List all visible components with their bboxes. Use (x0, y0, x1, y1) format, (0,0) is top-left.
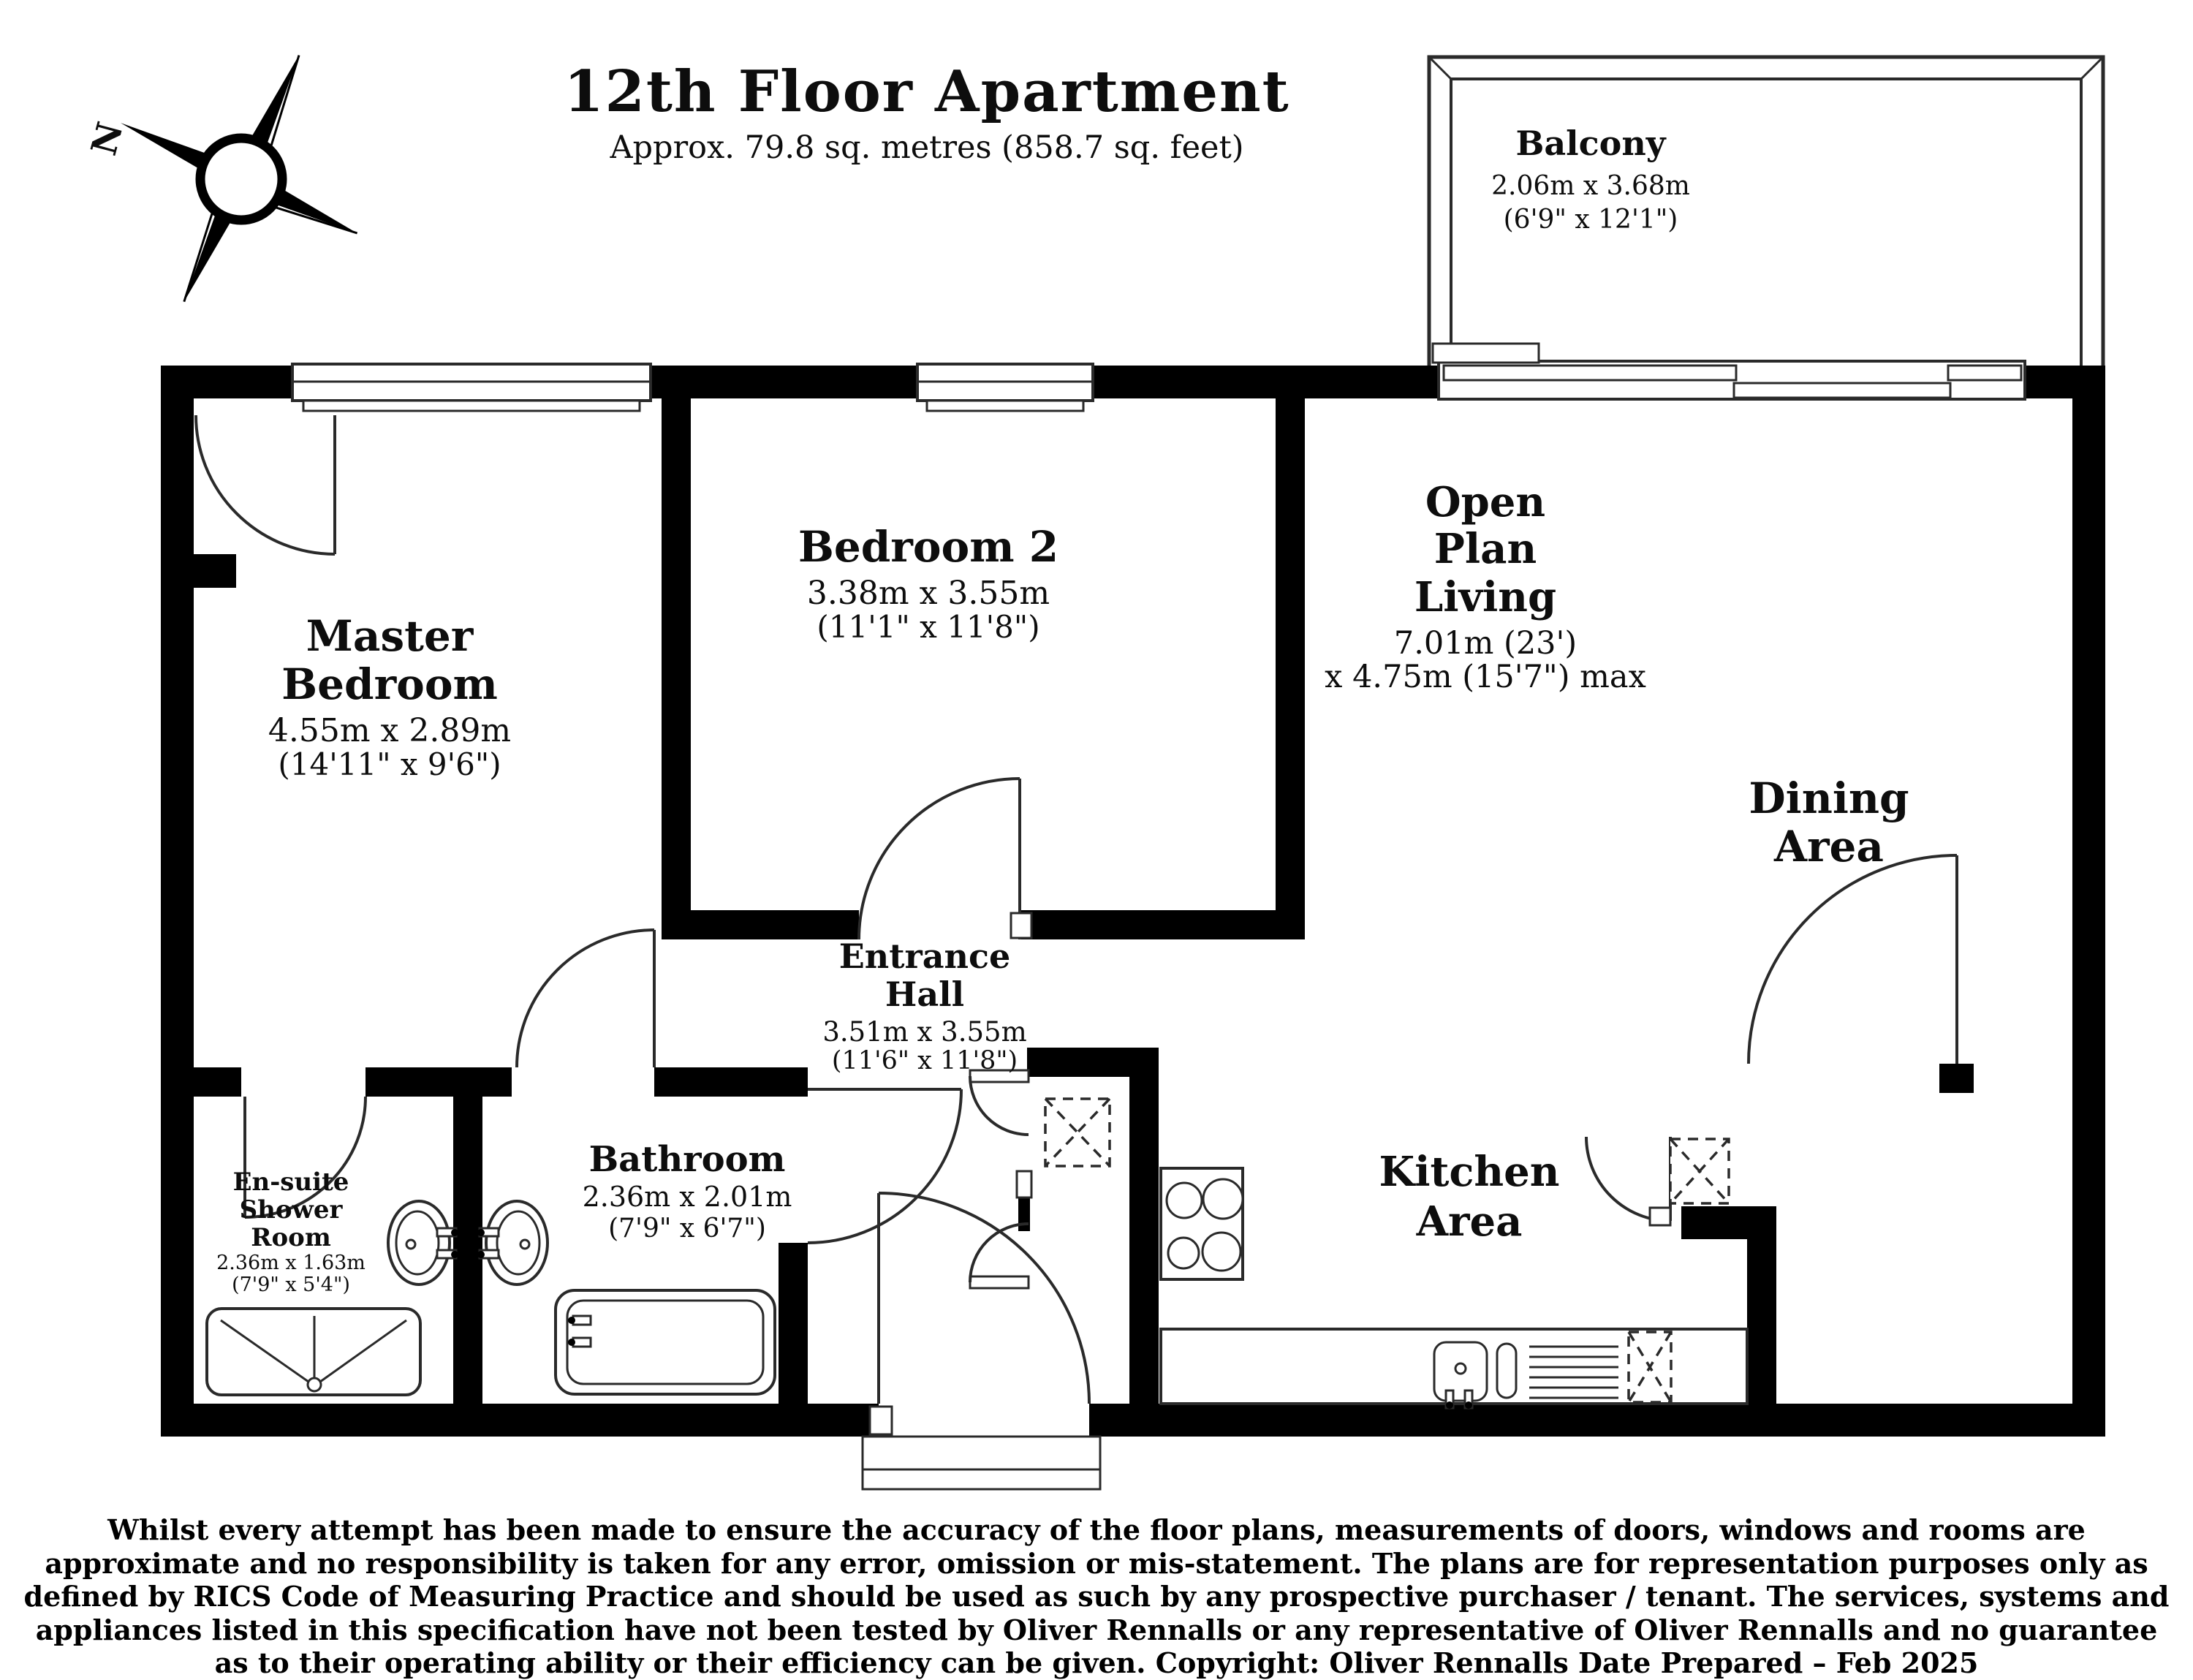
ensuite-name-2: Shower (240, 1195, 344, 1225)
bathtub-icon (556, 1290, 775, 1394)
disclaimer-text: Whilst every attempt has been made to en… (15, 1503, 2178, 1680)
shower-tray-icon (207, 1309, 420, 1395)
ensuite-dims-imperial: (7'9" x 5'4") (232, 1274, 350, 1296)
living-name-2: Plan (1434, 525, 1537, 573)
bathroom-dims-imperial: (7'9" x 6'7") (608, 1214, 766, 1244)
hob-icon (1161, 1168, 1243, 1279)
dishwasher-space-icon (1629, 1332, 1671, 1402)
bedroom2-door (859, 779, 1031, 939)
bedroom2-label: Bedroom 2 3.38m x 3.55m (11'1" x 11'8") (798, 522, 1058, 645)
balcony-dims-imperial: (6'9" x 12'1") (1504, 205, 1678, 235)
bathroom-door (808, 1089, 961, 1243)
kitchen-door (1586, 1137, 1670, 1225)
living-dims-1: 7.01m (23') (1394, 625, 1577, 662)
wardrobe-door (196, 415, 335, 554)
floor-plan-page: N 12th Floor Apartment Approx. 79.8 sq. … (0, 0, 2193, 1645)
dining-name-1: Dining (1749, 773, 1909, 823)
balcony-name: Balcony (1515, 124, 1666, 163)
bathroom-dims-metric: 2.36m x 2.01m (583, 1181, 792, 1213)
living-name-3: Living (1414, 573, 1556, 621)
bathroom-basin-icon (477, 1201, 548, 1284)
ensuite-name-3: Room (251, 1223, 331, 1252)
bedroom2-window (917, 364, 1093, 411)
bedroom2-dims-metric: 3.38m x 3.55m (807, 575, 1050, 612)
balcony-dims-metric: 2.06m x 3.68m (1491, 171, 1690, 201)
dining-area-label: Dining Area (1749, 773, 1909, 871)
balcony-sliding-door (1433, 344, 2025, 399)
entrance-door (863, 1193, 1100, 1489)
page-title: 12th Floor Apartment (564, 58, 1289, 125)
living-name-1: Open (1425, 478, 1545, 526)
bathroom-label: Bathroom 2.36m x 2.01m (7'9" x 6'7") (583, 1139, 792, 1244)
ensuite-basin-icon (388, 1201, 458, 1284)
walls (161, 366, 2105, 1437)
bathroom-name: Bathroom (589, 1139, 786, 1180)
dining-door (1749, 855, 1957, 1064)
ensuite-name-1: En-suite (233, 1168, 349, 1197)
entrance-hall-label: Entrance Hall 3.51m x 3.55m (11'6" x 11'… (822, 937, 1026, 1075)
living-dims-2: x 4.75m (15'7") max (1325, 659, 1646, 695)
master-dims-imperial: (14'11" x 9'6") (278, 746, 501, 782)
washer-space-icon (1045, 1099, 1110, 1166)
open-plan-living-label: Open Plan Living 7.01m (23') x 4.75m (15… (1325, 478, 1646, 695)
ensuite-dims-metric: 2.36m x 1.63m (216, 1252, 365, 1274)
page-subtitle: Approx. 79.8 sq. metres (858.7 sq. feet) (609, 129, 1243, 166)
compass-icon: N (64, 0, 415, 356)
master-dims-metric: 4.55m x 2.89m (268, 712, 511, 749)
balcony-label: Balcony 2.06m x 3.68m (6'9" x 12'1") (1491, 124, 1690, 235)
kitchen-area-label: Kitchen Area (1379, 1148, 1560, 1246)
hall-name-2: Hall (885, 975, 964, 1014)
master-name-1: Master (306, 611, 474, 661)
ensuite-label: En-suite Shower Room 2.36m x 1.63m (7'9"… (216, 1168, 365, 1296)
bedroom2-dims-imperial: (11'1" x 11'8") (817, 609, 1039, 645)
master-name-2: Bedroom (281, 659, 498, 709)
kitchen-name-2: Area (1416, 1197, 1523, 1246)
hall-closet-doors (970, 1070, 1031, 1288)
hall-dims-imperial: (11'6" x 11'8") (832, 1046, 1018, 1075)
bedroom2-name: Bedroom 2 (798, 522, 1058, 572)
kitchen-name-1: Kitchen (1379, 1148, 1560, 1196)
dining-name-2: Area (1773, 822, 1884, 871)
hall-dims-metric: 3.51m x 3.55m (822, 1016, 1026, 1048)
fridge-space-icon (1670, 1139, 1729, 1203)
hall-name-1: Entrance (839, 937, 1011, 976)
master-window (292, 364, 651, 411)
master-bedroom-label: Master Bedroom 4.55m x 2.89m (14'11" x 9… (268, 611, 511, 782)
master-bedroom-door (517, 930, 654, 1067)
floor-plan-canvas: N 12th Floor Apartment Approx. 79.8 sq. … (0, 0, 2193, 1503)
